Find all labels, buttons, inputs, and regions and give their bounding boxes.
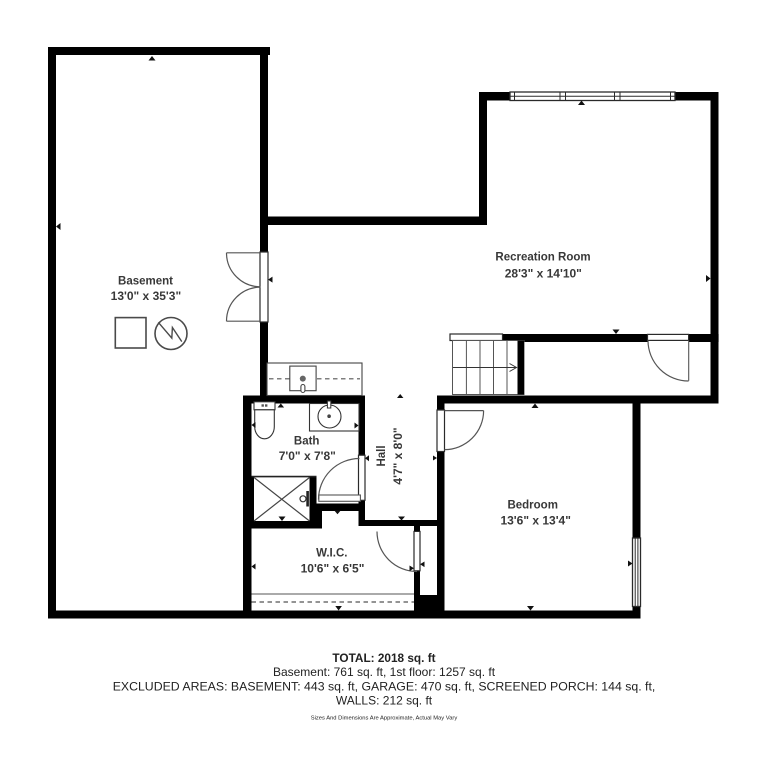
svg-text:10'6" x 6'5": 10'6" x 6'5" [301,562,365,576]
svg-text:Basement: Basement [118,275,173,287]
svg-text:7'0" x 7'8": 7'0" x 7'8" [279,449,336,463]
svg-text:Bath: Bath [294,436,320,448]
svg-text:WALLS: 212 sq. ft: WALLS: 212 sq. ft [336,694,433,708]
svg-text:Basement: 761 sq. ft, 1st floo: Basement: 761 sq. ft, 1st floor: 1257 sq… [273,665,496,679]
svg-text:28'3" x 14'10": 28'3" x 14'10" [505,266,582,280]
svg-text:13'0" x 35'3": 13'0" x 35'3" [111,289,181,303]
svg-text:Hall: Hall [376,445,388,466]
svg-text:Sizes And Dimensions Are Appro: Sizes And Dimensions Are Approximate, Ac… [311,716,458,722]
svg-text:W.I.C.: W.I.C. [316,548,347,560]
svg-text:4'7" x 8'0": 4'7" x 8'0" [391,427,405,484]
svg-text:13'6" x 13'4": 13'6" x 13'4" [500,513,570,527]
svg-text:Bedroom: Bedroom [507,499,557,511]
svg-text:TOTAL: 2018 sq. ft: TOTAL: 2018 sq. ft [332,651,435,665]
svg-text:Recreation Room: Recreation Room [495,251,590,263]
svg-text:EXCLUDED AREAS: BASEMENT: 443: EXCLUDED AREAS: BASEMENT: 443 sq. ft, GA… [113,679,656,693]
